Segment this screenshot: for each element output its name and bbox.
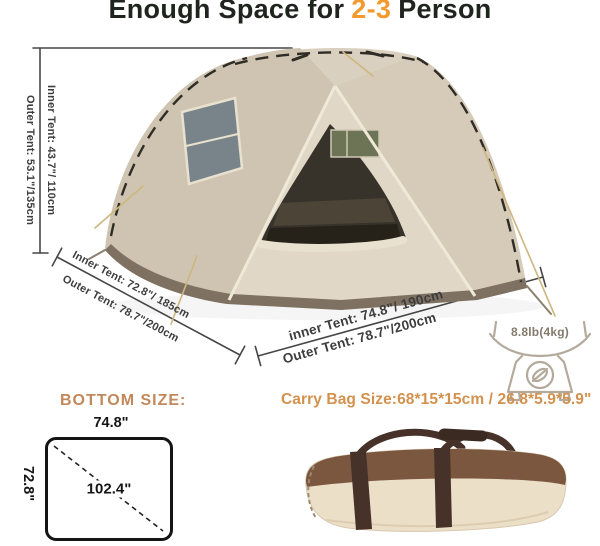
width-right-cap [235, 346, 244, 364]
tent-dimensions-infographic: Enough Space for2-3Person [0, 0, 600, 546]
height-outer-label: Outer Tent: 53.1"/135cm [24, 95, 36, 225]
width-left-cap [52, 248, 61, 266]
carry-bag-illustration [286, 424, 576, 542]
bottom-size-heading: BOTTOM SIZE: [60, 392, 186, 410]
height-inner-label: Inner Tent: 43.7"/ 110cm [45, 85, 57, 215]
floor-diagonal-label: 102.4" [83, 481, 136, 498]
tent-illustration [85, 38, 565, 330]
floor-width-label: 74.8" [45, 415, 177, 431]
carry-bag-size-label: Carry Bag Size:68*15*15cm / 26.8*5.9*5.9… [281, 391, 591, 409]
bag-strap-right [434, 448, 452, 528]
floor-plan-rectangle: 102.4" [45, 437, 173, 541]
weight-label: 8.8lb(4kg) [492, 325, 588, 339]
bag-handle-grip [444, 434, 482, 436]
floor-height-label: 72.8" [20, 466, 36, 501]
